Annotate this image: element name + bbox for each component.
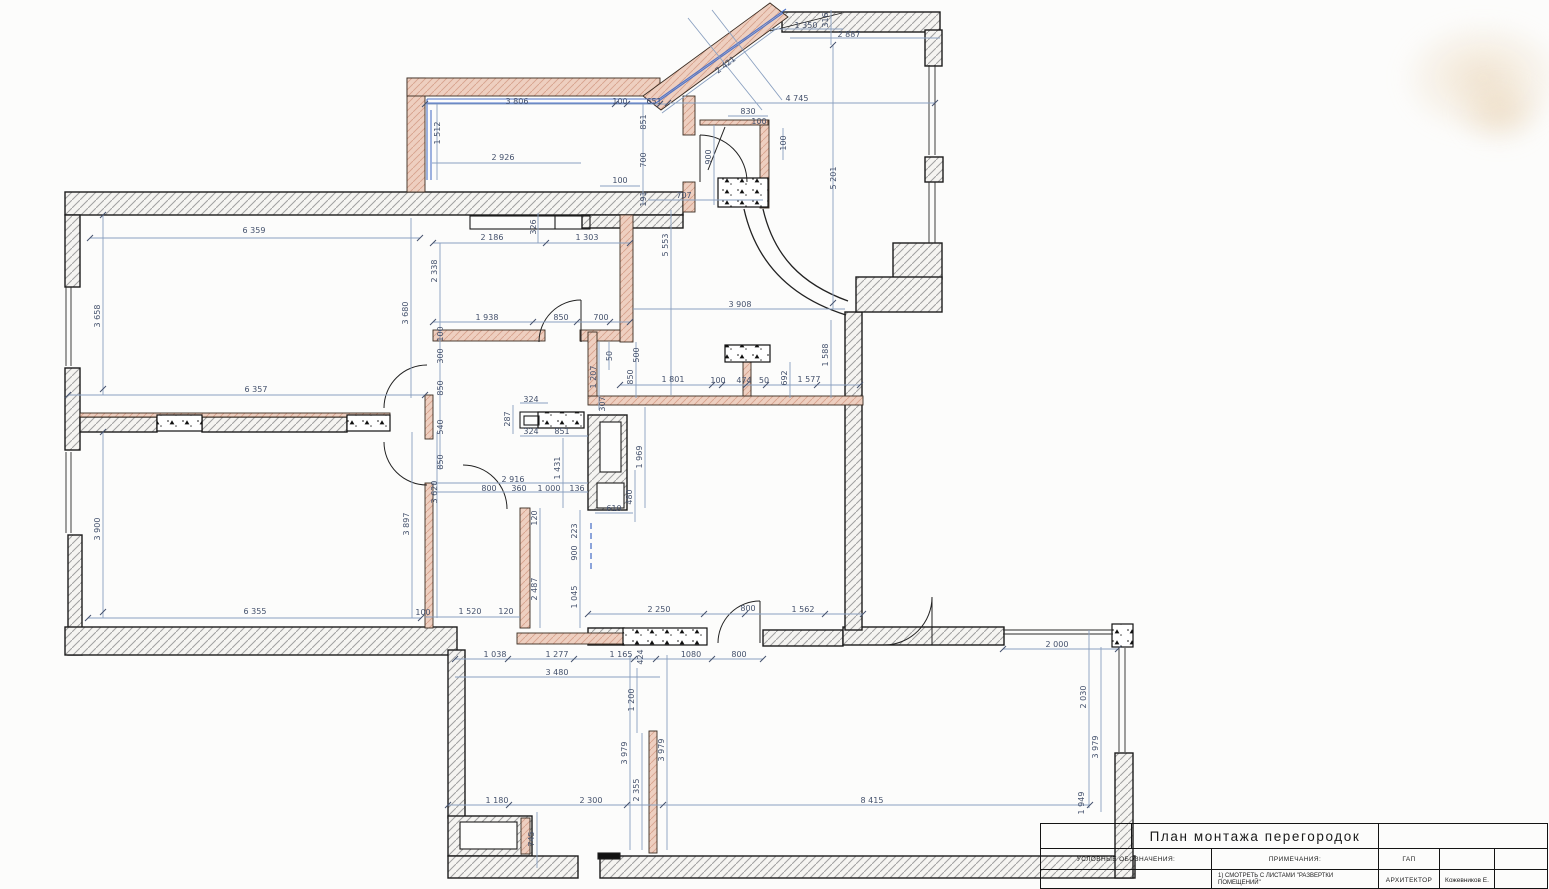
dimension-label: 120 — [498, 607, 513, 616]
dimension-label: 50 — [605, 351, 614, 361]
dimension-label: 2 887 — [838, 30, 861, 39]
dimension-label: 4 745 — [786, 94, 809, 103]
title-block-empty-cell — [1041, 824, 1131, 848]
dimension-label: 1 350 — [795, 21, 818, 30]
dimension-label: 1080 — [681, 650, 701, 659]
dimension-label: 316 — [821, 12, 830, 27]
dimension-label: 480 — [625, 489, 634, 504]
dimension-label: 851 — [639, 114, 648, 129]
dimension-label: 3 908 — [729, 300, 752, 309]
title-block-row-2: УСЛОВНЫЕ ОБОЗНАЧЕНИЯ: ПРИМЕЧАНИЯ: ГАП — [1041, 848, 1547, 869]
dimension-label: 2 030 — [1079, 686, 1088, 709]
dimension-label: 800 — [481, 484, 496, 493]
legend-label: УСЛОВНЫЕ ОБОЗНАЧЕНИЯ: — [1077, 856, 1176, 863]
dimension-label: 5 201 — [829, 167, 838, 190]
dimension-label: 2 300 — [580, 796, 603, 805]
dimension-label: 1 562 — [792, 605, 815, 614]
legend-cell: УСЛОВНЫЕ ОБОЗНАЧЕНИЯ: — [1041, 849, 1211, 869]
dimension-label: 3 897 — [402, 513, 411, 536]
dimension-label: 3 658 — [93, 305, 102, 328]
dimension-label: 800 — [740, 604, 755, 613]
dimension-label: 1 969 — [635, 446, 644, 469]
dimension-label: 2 250 — [648, 605, 671, 614]
dimension-label: 287 — [503, 411, 512, 426]
dimension-label: 474 — [736, 376, 751, 385]
notes-body-cell: 1) СМОТРЕТЬ С ЛИСТАМИ "РАЗВЕРТКИ ПОМЕЩЕН… — [1211, 870, 1378, 889]
dimension-label: 223 — [570, 523, 579, 538]
dimension-label: 300 — [436, 348, 445, 363]
dimension-label: 3 900 — [93, 518, 102, 541]
architect-name-cell: Кожевников Е. — [1439, 870, 1494, 889]
dimension-label: 1 938 — [476, 313, 499, 322]
dimension-label: 2 000 — [1046, 640, 1069, 649]
dimension-label: 850 — [553, 313, 568, 322]
dimension-label: 900 — [704, 149, 713, 164]
dimension-label: 50 — [759, 376, 769, 385]
dimension-label: 2 338 — [430, 260, 439, 283]
dimension-label: 1 512 — [433, 122, 442, 145]
floor-plan-drawing: 3 8061006511 5128512 9267001001917075 55… — [0, 0, 1549, 889]
dimension-label: 1 801 — [662, 375, 685, 384]
dimension-label: 100 — [751, 117, 766, 126]
dimension-label: 3 806 — [506, 97, 529, 106]
notes-label: ПРИМЕЧАНИЯ: — [1269, 856, 1321, 863]
dimension-label: 1 588 — [821, 344, 830, 367]
dimension-label: 1 949 — [1077, 792, 1086, 815]
dimension-label: 1 431 — [553, 457, 562, 480]
dimension-label: 651 — [646, 97, 661, 106]
dimension-label: 3 979 — [620, 742, 629, 765]
dimension-label: 136 — [569, 484, 584, 493]
dimension-label: 2 916 — [502, 475, 525, 484]
dimension-label: 3 680 — [401, 302, 410, 325]
title-block-row-1: План монтажа перегородок — [1041, 824, 1547, 848]
dimension-label: 800 — [731, 650, 746, 659]
dimension-label: 851 — [554, 427, 569, 436]
dimension-label: 1 180 — [486, 796, 509, 805]
drawing-title: План монтажа перегородок — [1150, 829, 1361, 844]
dimension-label: 120 — [530, 510, 539, 525]
dimension-label: 191 — [639, 191, 648, 206]
dimension-label: 6 357 — [245, 385, 268, 394]
notes-header-cell: ПРИМЕЧАНИЯ: — [1211, 849, 1378, 869]
dimension-label: 307 — [598, 396, 607, 411]
title-block-row-3: 1) СМОТРЕТЬ С ЛИСТАМИ "РАЗВЕРТКИ ПОМЕЩЕН… — [1041, 869, 1547, 889]
dimension-label: 100 — [710, 376, 725, 385]
gap-cell: ГАП — [1378, 849, 1439, 869]
dimension-label: 2 355 — [632, 779, 641, 802]
dimension-label: 3 979 — [1091, 736, 1100, 759]
dimension-label: 850 — [626, 369, 635, 384]
dimension-label: 2 926 — [492, 153, 515, 162]
dimension-label: 692 — [780, 370, 789, 385]
dimension-label: 707 — [676, 191, 691, 200]
dimension-label: 100 — [612, 176, 627, 185]
dimension-label: 326 — [529, 219, 538, 234]
architect-name: Кожевников Е. — [1445, 877, 1489, 884]
dimension-label: 100 — [612, 97, 627, 106]
gap-label: ГАП — [1402, 856, 1415, 863]
dimension-label: 5 553 — [661, 234, 670, 257]
legend-body-cell — [1041, 870, 1211, 889]
dimension-label: 6 359 — [243, 226, 266, 235]
dimension-label: 1 520 — [459, 607, 482, 616]
dimension-label: 1 200 — [627, 689, 636, 712]
scanned-floor-plan-page: 3 8061006511 5128512 9267001001917075 55… — [0, 0, 1549, 889]
dimension-label: 1 045 — [570, 586, 579, 609]
dimension-label: 700 — [639, 152, 648, 167]
dimension-label: 850 — [436, 380, 445, 395]
dimension-label: 1 207 — [589, 366, 598, 389]
dimension-label: 3 480 — [546, 668, 569, 677]
architect-label-cell: АРХИТЕКТОР — [1378, 870, 1439, 889]
dimension-label: 360 — [511, 484, 526, 493]
title-block-empty-cell — [1378, 824, 1547, 848]
dimension-label: 500 — [632, 347, 641, 362]
dimension-label: 424 — [636, 649, 645, 664]
title-block-empty-cell — [1494, 870, 1547, 889]
dimension-label: 324 — [523, 427, 538, 436]
dimension-label: 900 — [570, 545, 579, 560]
dimension-label: 3 620 — [430, 481, 439, 504]
dimension-label: 8 415 — [861, 796, 884, 805]
dimension-label: 700 — [593, 313, 608, 322]
dimension-label: 100 — [436, 326, 445, 341]
title-block-empty-cell — [1439, 849, 1494, 869]
dimension-label: 6 355 — [244, 607, 267, 616]
architect-label: АРХИТЕКТОР — [1386, 877, 1433, 884]
dimension-label: 2 186 — [481, 233, 504, 242]
dimension-label: 100 — [779, 135, 788, 150]
dimension-label: 1 038 — [484, 650, 507, 659]
dimension-label: 324 — [523, 395, 538, 404]
dimension-label: 745 — [527, 831, 536, 846]
dimension-label: 1 000 — [538, 484, 561, 493]
dimension-label: 1 165 — [610, 650, 633, 659]
dimension-label: 1 303 — [576, 233, 599, 242]
dimension-label: 2 487 — [530, 578, 539, 601]
dimension-label: 3 979 — [657, 739, 666, 762]
dimension-label: 610 — [606, 504, 621, 513]
note-text: 1) СМОТРЕТЬ С ЛИСТАМИ "РАЗВЕРТКИ ПОМЕЩЕН… — [1212, 873, 1378, 887]
dimension-label: 1 577 — [798, 375, 821, 384]
drawing-title-cell: План монтажа перегородок — [1131, 824, 1378, 848]
dimension-label: 100 — [415, 608, 430, 617]
title-block: План монтажа перегородок УСЛОВНЫЕ ОБОЗНА… — [1040, 823, 1548, 889]
title-block-empty-cell — [1494, 849, 1547, 869]
dimension-label: 1 277 — [546, 650, 569, 659]
dimension-label: 540 — [436, 419, 445, 434]
dimension-label: 850 — [436, 454, 445, 469]
dimension-label: 830 — [740, 107, 755, 116]
